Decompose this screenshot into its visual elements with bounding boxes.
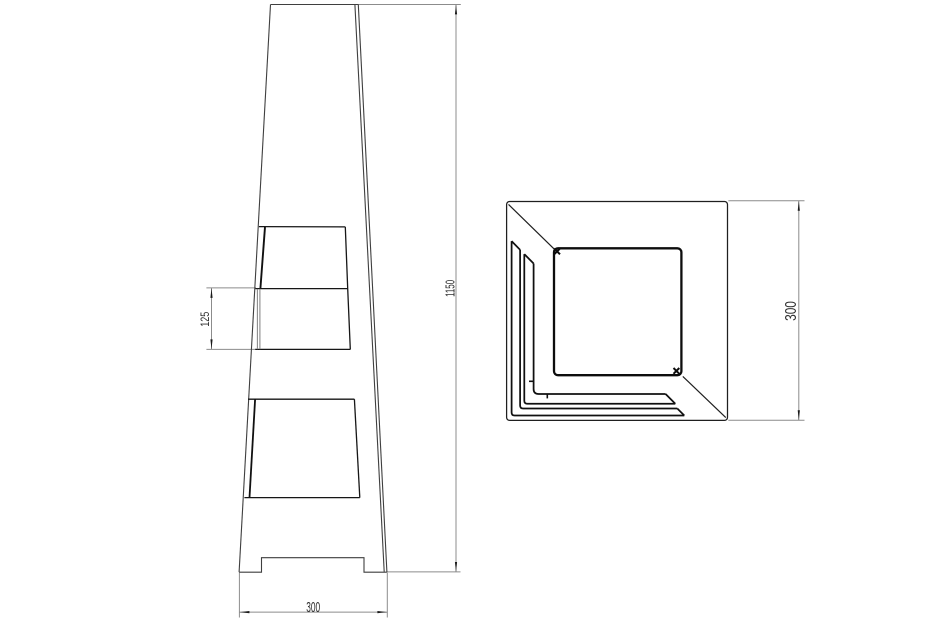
svg-text:300: 300 (306, 600, 320, 616)
svg-text:1150: 1150 (444, 280, 458, 297)
svg-text:300: 300 (781, 301, 799, 321)
svg-text:125: 125 (199, 312, 213, 327)
